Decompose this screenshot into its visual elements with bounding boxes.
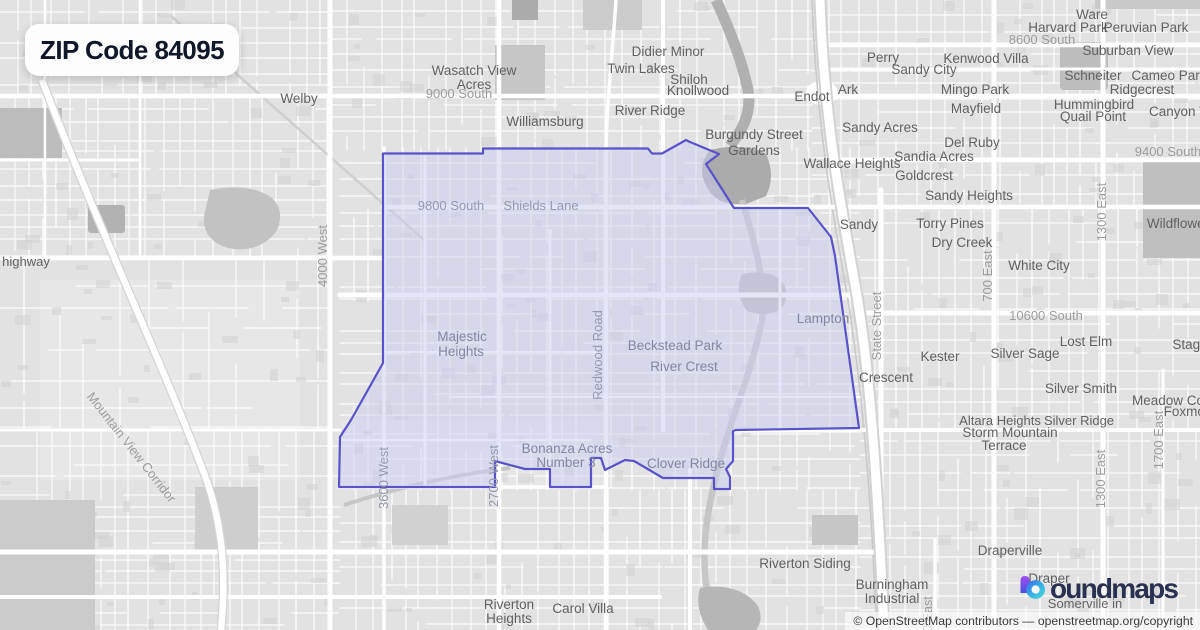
svg-text:Redwood Road: Redwood Road xyxy=(590,310,605,400)
svg-text:Sandy: Sandy xyxy=(840,217,879,232)
svg-text:Sandia Acres: Sandia Acres xyxy=(894,149,974,164)
svg-text:1300 East: 1300 East xyxy=(1093,449,1108,508)
svg-text:Ark: Ark xyxy=(838,82,859,97)
svg-text:9400 South: 9400 South xyxy=(1135,144,1200,159)
svg-text:Wasatch View: Wasatch View xyxy=(432,63,517,78)
svg-text:Beckstead Park: Beckstead Park xyxy=(628,338,723,353)
svg-text:1700 East: 1700 East xyxy=(1151,410,1166,469)
svg-text:Suburban View: Suburban View xyxy=(1082,43,1174,58)
svg-text:Heights: Heights xyxy=(486,611,532,626)
svg-text:Wildflower: Wildflower xyxy=(1147,216,1200,231)
svg-text:River Ridge: River Ridge xyxy=(615,103,686,118)
svg-text:highway: highway xyxy=(2,254,50,269)
svg-text:Carol Villa: Carol Villa xyxy=(552,601,614,616)
svg-text:Draperville: Draperville xyxy=(978,543,1043,558)
svg-text:Peruvian Park: Peruvian Park xyxy=(1104,20,1189,35)
svg-text:Sandy Heights: Sandy Heights xyxy=(925,188,1013,203)
svg-text:Number 3: Number 3 xyxy=(536,455,595,470)
svg-text:Del Ruby: Del Ruby xyxy=(944,135,1000,150)
svg-text:Clover Ridge: Clover Ridge xyxy=(647,456,725,471)
svg-text:Crescent: Crescent xyxy=(859,370,913,385)
svg-text:Didier Minor: Didier Minor xyxy=(632,44,705,59)
svg-text:700 East: 700 East xyxy=(980,250,995,302)
svg-text:Knollwood: Knollwood xyxy=(667,83,729,98)
svg-text:Dry Creek: Dry Creek xyxy=(932,235,993,250)
svg-text:9800 South: 9800 South xyxy=(418,198,485,213)
svg-text:Lampton: Lampton xyxy=(797,311,850,326)
svg-text:Quail Point: Quail Point xyxy=(1060,109,1126,124)
svg-text:Williamsburg: Williamsburg xyxy=(506,114,583,129)
svg-text:White City: White City xyxy=(1008,258,1070,273)
svg-text:Gardens: Gardens xyxy=(728,143,780,158)
svg-text:State Street: State Street xyxy=(869,291,884,360)
svg-text:Stagg: Stagg xyxy=(1172,337,1200,352)
svg-text:Wallace Heights: Wallace Heights xyxy=(803,156,900,171)
svg-text:4000 West: 4000 West xyxy=(315,225,330,287)
svg-text:Riverton Siding: Riverton Siding xyxy=(759,556,851,571)
svg-text:Kester: Kester xyxy=(920,349,960,364)
svg-text:Sandy Acres: Sandy Acres xyxy=(842,120,918,135)
svg-text:Schneiter: Schneiter xyxy=(1064,68,1122,83)
svg-text:Shields Lane: Shields Lane xyxy=(503,198,578,213)
svg-text:Torry Pines: Torry Pines xyxy=(916,216,984,231)
svg-text:3600 West: 3600 West xyxy=(376,447,391,509)
svg-text:River Crest: River Crest xyxy=(650,359,718,374)
svg-text:Lost Elm: Lost Elm xyxy=(1060,334,1113,349)
svg-text:Ridgecrest: Ridgecrest xyxy=(1110,82,1175,97)
svg-text:Cameo Park: Cameo Park xyxy=(1131,68,1200,83)
svg-text:Burningham: Burningham xyxy=(856,577,929,592)
svg-text:Mayfield: Mayfield xyxy=(951,101,1001,116)
svg-text:Bonanza Acres: Bonanza Acres xyxy=(522,441,613,456)
svg-text:Welby: Welby xyxy=(280,91,318,106)
svg-text:Silver Smith: Silver Smith xyxy=(1045,381,1117,396)
svg-text:Heights: Heights xyxy=(438,344,484,359)
svg-text:Riverton: Riverton xyxy=(484,597,534,612)
svg-text:Twin Lakes: Twin Lakes xyxy=(607,61,675,76)
svg-text:Silver Sage: Silver Sage xyxy=(990,346,1059,361)
svg-text:Terrace: Terrace xyxy=(981,438,1026,453)
svg-text:Kenwood Villa: Kenwood Villa xyxy=(943,51,1029,66)
svg-text:Foxmoo: Foxmoo xyxy=(1164,404,1200,419)
svg-text:Burgundy Street: Burgundy Street xyxy=(705,127,803,142)
svg-text:2700 West: 2700 West xyxy=(486,445,501,507)
svg-text:Goldcrest: Goldcrest xyxy=(895,168,953,183)
svg-text:1300 East: 1300 East xyxy=(1094,182,1109,241)
svg-text:Canyon Vi: Canyon Vi xyxy=(1149,104,1200,119)
svg-text:Industrial: Industrial xyxy=(865,591,920,606)
svg-text:Majestic: Majestic xyxy=(437,329,487,344)
svg-text:Endot: Endot xyxy=(794,89,830,104)
svg-text:10600 South: 10600 South xyxy=(1009,308,1083,323)
svg-text:Mingo Park: Mingo Park xyxy=(941,82,1010,97)
svg-text:8600 South: 8600 South xyxy=(1009,32,1076,47)
svg-text:9000 South: 9000 South xyxy=(426,86,493,101)
